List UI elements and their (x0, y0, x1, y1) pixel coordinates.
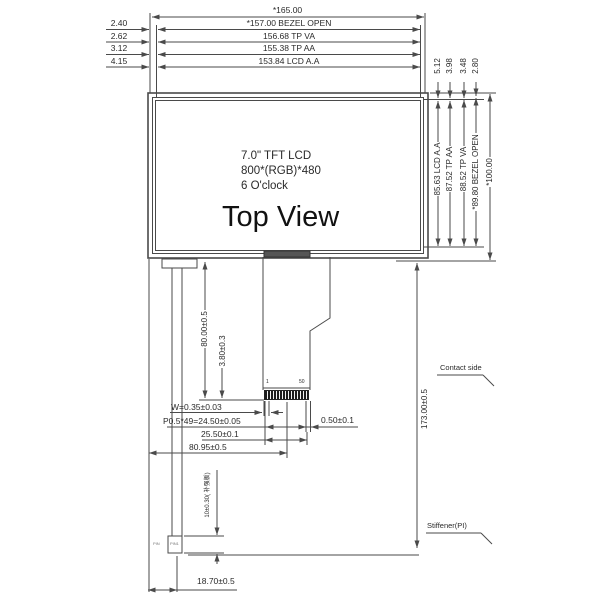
dim-roffset-3: 3.48 (460, 46, 468, 86)
contact-side-label: Contact side (440, 364, 482, 372)
pin-50-label: 50 (299, 380, 305, 385)
panel-spec-size: 7.0" TFT LCD (241, 151, 311, 163)
stiffener-label: Stiffener(PI) (427, 522, 467, 530)
dim-roffset-1: 5.12 (434, 46, 442, 86)
dim-tpaa-height: 87.52 TP AA (446, 124, 454, 214)
dim-pin-width: W=0.35±0.03 (171, 403, 222, 412)
tail-mark-left: PIN (153, 542, 160, 546)
dim-bezel-open-width: *157.00 BEZEL OPEN (200, 19, 378, 28)
dim-offset-tpaa: 3.12 (104, 44, 134, 53)
dim-lcdaa-width: 153.84 LCD A.A (200, 57, 378, 66)
dim-offset-bezel: 2.40 (104, 19, 134, 28)
dim-roffset-2: 3.98 (446, 46, 454, 86)
dim-foot-height: 10±0.30( 补强板) (205, 457, 211, 533)
drawing-linework (0, 0, 600, 600)
dim-contact-span: 25.50±0.1 (201, 430, 239, 439)
dim-bezel-open-height: *89.80 BEZEL OPEN (472, 127, 480, 217)
lcd-dimension-drawing: *165.00 2.40 *157.00 BEZEL OPEN 2.62 156… (0, 0, 600, 600)
tail-mark-right: PIN1 (170, 542, 179, 546)
dim-offset-tpva: 2.62 (104, 32, 134, 41)
dim-tpaa-width: 155.38 TP AA (200, 44, 378, 53)
bottom-dimension-lines (148, 262, 419, 590)
dim-overall-height: *100.00 (486, 127, 494, 217)
leader-lines (426, 375, 494, 544)
dim-offset-lcdaa: 4.15 (104, 57, 134, 66)
dim-edge-margin: 0.50±0.1 (321, 416, 354, 425)
dim-roffset-4: 2.80 (472, 46, 480, 86)
pin-1-label: 1 (266, 380, 269, 385)
dim-total-length: 173.00±0.5 (421, 376, 429, 442)
dim-tail-offset: 18.70±0.5 (197, 577, 235, 586)
dim-lcdaa-height: 85.63 LCD A.A (434, 124, 442, 214)
dim-fpc-offset: 80.95±0.5 (189, 443, 227, 452)
dim-pitch: P0.5*49=24.50±0.05 (163, 417, 241, 426)
dim-tpva-height: 88.52 TP VA (460, 124, 468, 214)
fpc-connector-contacts (264, 390, 309, 400)
dim-stiffener-overlap: 3.80±0.3 (219, 321, 227, 381)
dim-overall-width: *165.00 (250, 6, 325, 15)
dim-fpc-length: 80.00±0.5 (201, 294, 209, 364)
view-title: Top View (222, 203, 339, 232)
dim-tpva-width: 156.68 TP VA (200, 32, 378, 41)
panel-spec-viewing: 6 O'clock (241, 181, 288, 193)
panel-spec-resolution: 800*(RGB)*480 (241, 166, 321, 178)
